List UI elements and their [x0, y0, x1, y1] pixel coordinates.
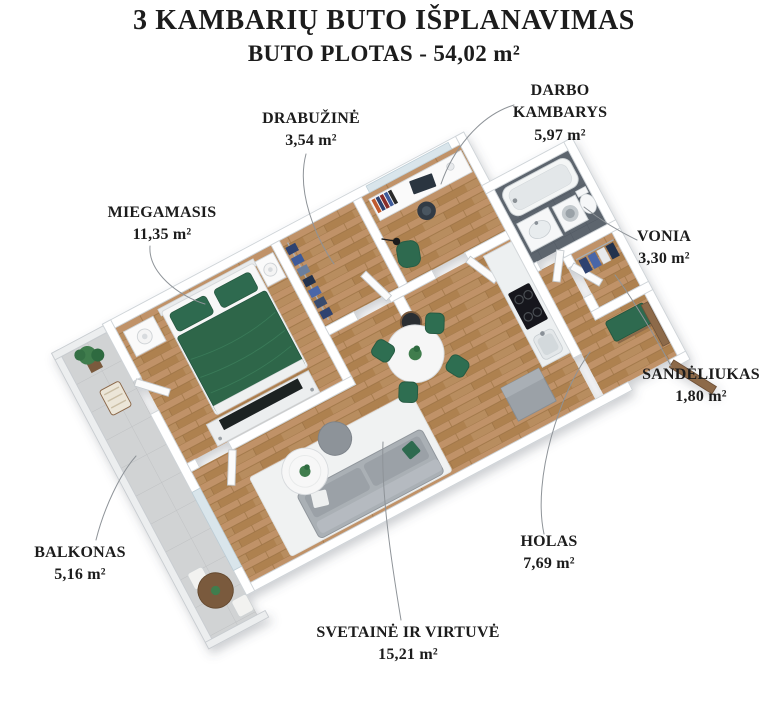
floor-plan-page: 3 KAMBARIŲ BUTO IŠPLANAVIMAS BUTO PLOTAS…: [0, 0, 768, 721]
room-area: 5,97 m²: [494, 125, 626, 147]
room-name: SANDĖLIUKAS: [642, 364, 760, 386]
room-area: 5,16 m²: [34, 564, 125, 586]
floor-plan-canvas: [0, 0, 768, 721]
room-name: VONIA: [637, 226, 691, 248]
room-area: 1,80 m²: [642, 386, 760, 408]
room-name: MIEGAMASIS: [108, 202, 217, 224]
page-subtitle: BUTO PLOTAS - 54,02 m²: [0, 41, 768, 67]
room-area: 3,54 m²: [262, 130, 360, 152]
page-title: 3 KAMBARIŲ BUTO IŠPLANAVIMAS: [0, 5, 768, 37]
floor-plan: [51, 83, 719, 658]
room-area: 7,69 m²: [520, 553, 577, 575]
bedroom-door: [228, 450, 237, 486]
room-name: HOLAS: [520, 531, 577, 553]
room-label-darbo: DARBO KAMBARYS 5,97 m²: [494, 80, 626, 147]
room-area: 3,30 m²: [637, 248, 691, 270]
room-name: SVETAINĖ IR VIRTUVĖ: [316, 622, 499, 644]
room-area: 15,21 m²: [316, 644, 499, 666]
room-label-svetaine: SVETAINĖ IR VIRTUVĖ 15,21 m²: [316, 622, 499, 667]
room-label-drabuzine: DRABUŽINĖ 3,54 m²: [262, 108, 360, 153]
room-name: DRABUŽINĖ: [262, 108, 360, 130]
room-label-balkonas: BALKONAS 5,16 m²: [34, 542, 125, 587]
room-label-vonia: VONIA 3,30 m²: [637, 226, 691, 271]
room-label-miegamasis: MIEGAMASIS 11,35 m²: [108, 202, 217, 247]
room-name: DARBO KAMBARYS: [494, 80, 626, 125]
room-label-holas: HOLAS 7,69 m²: [520, 531, 577, 576]
room-label-sandeliukas: SANDĖLIUKAS 1,80 m²: [642, 364, 760, 409]
room-name: BALKONAS: [34, 542, 125, 564]
room-area: 11,35 m²: [108, 224, 217, 246]
